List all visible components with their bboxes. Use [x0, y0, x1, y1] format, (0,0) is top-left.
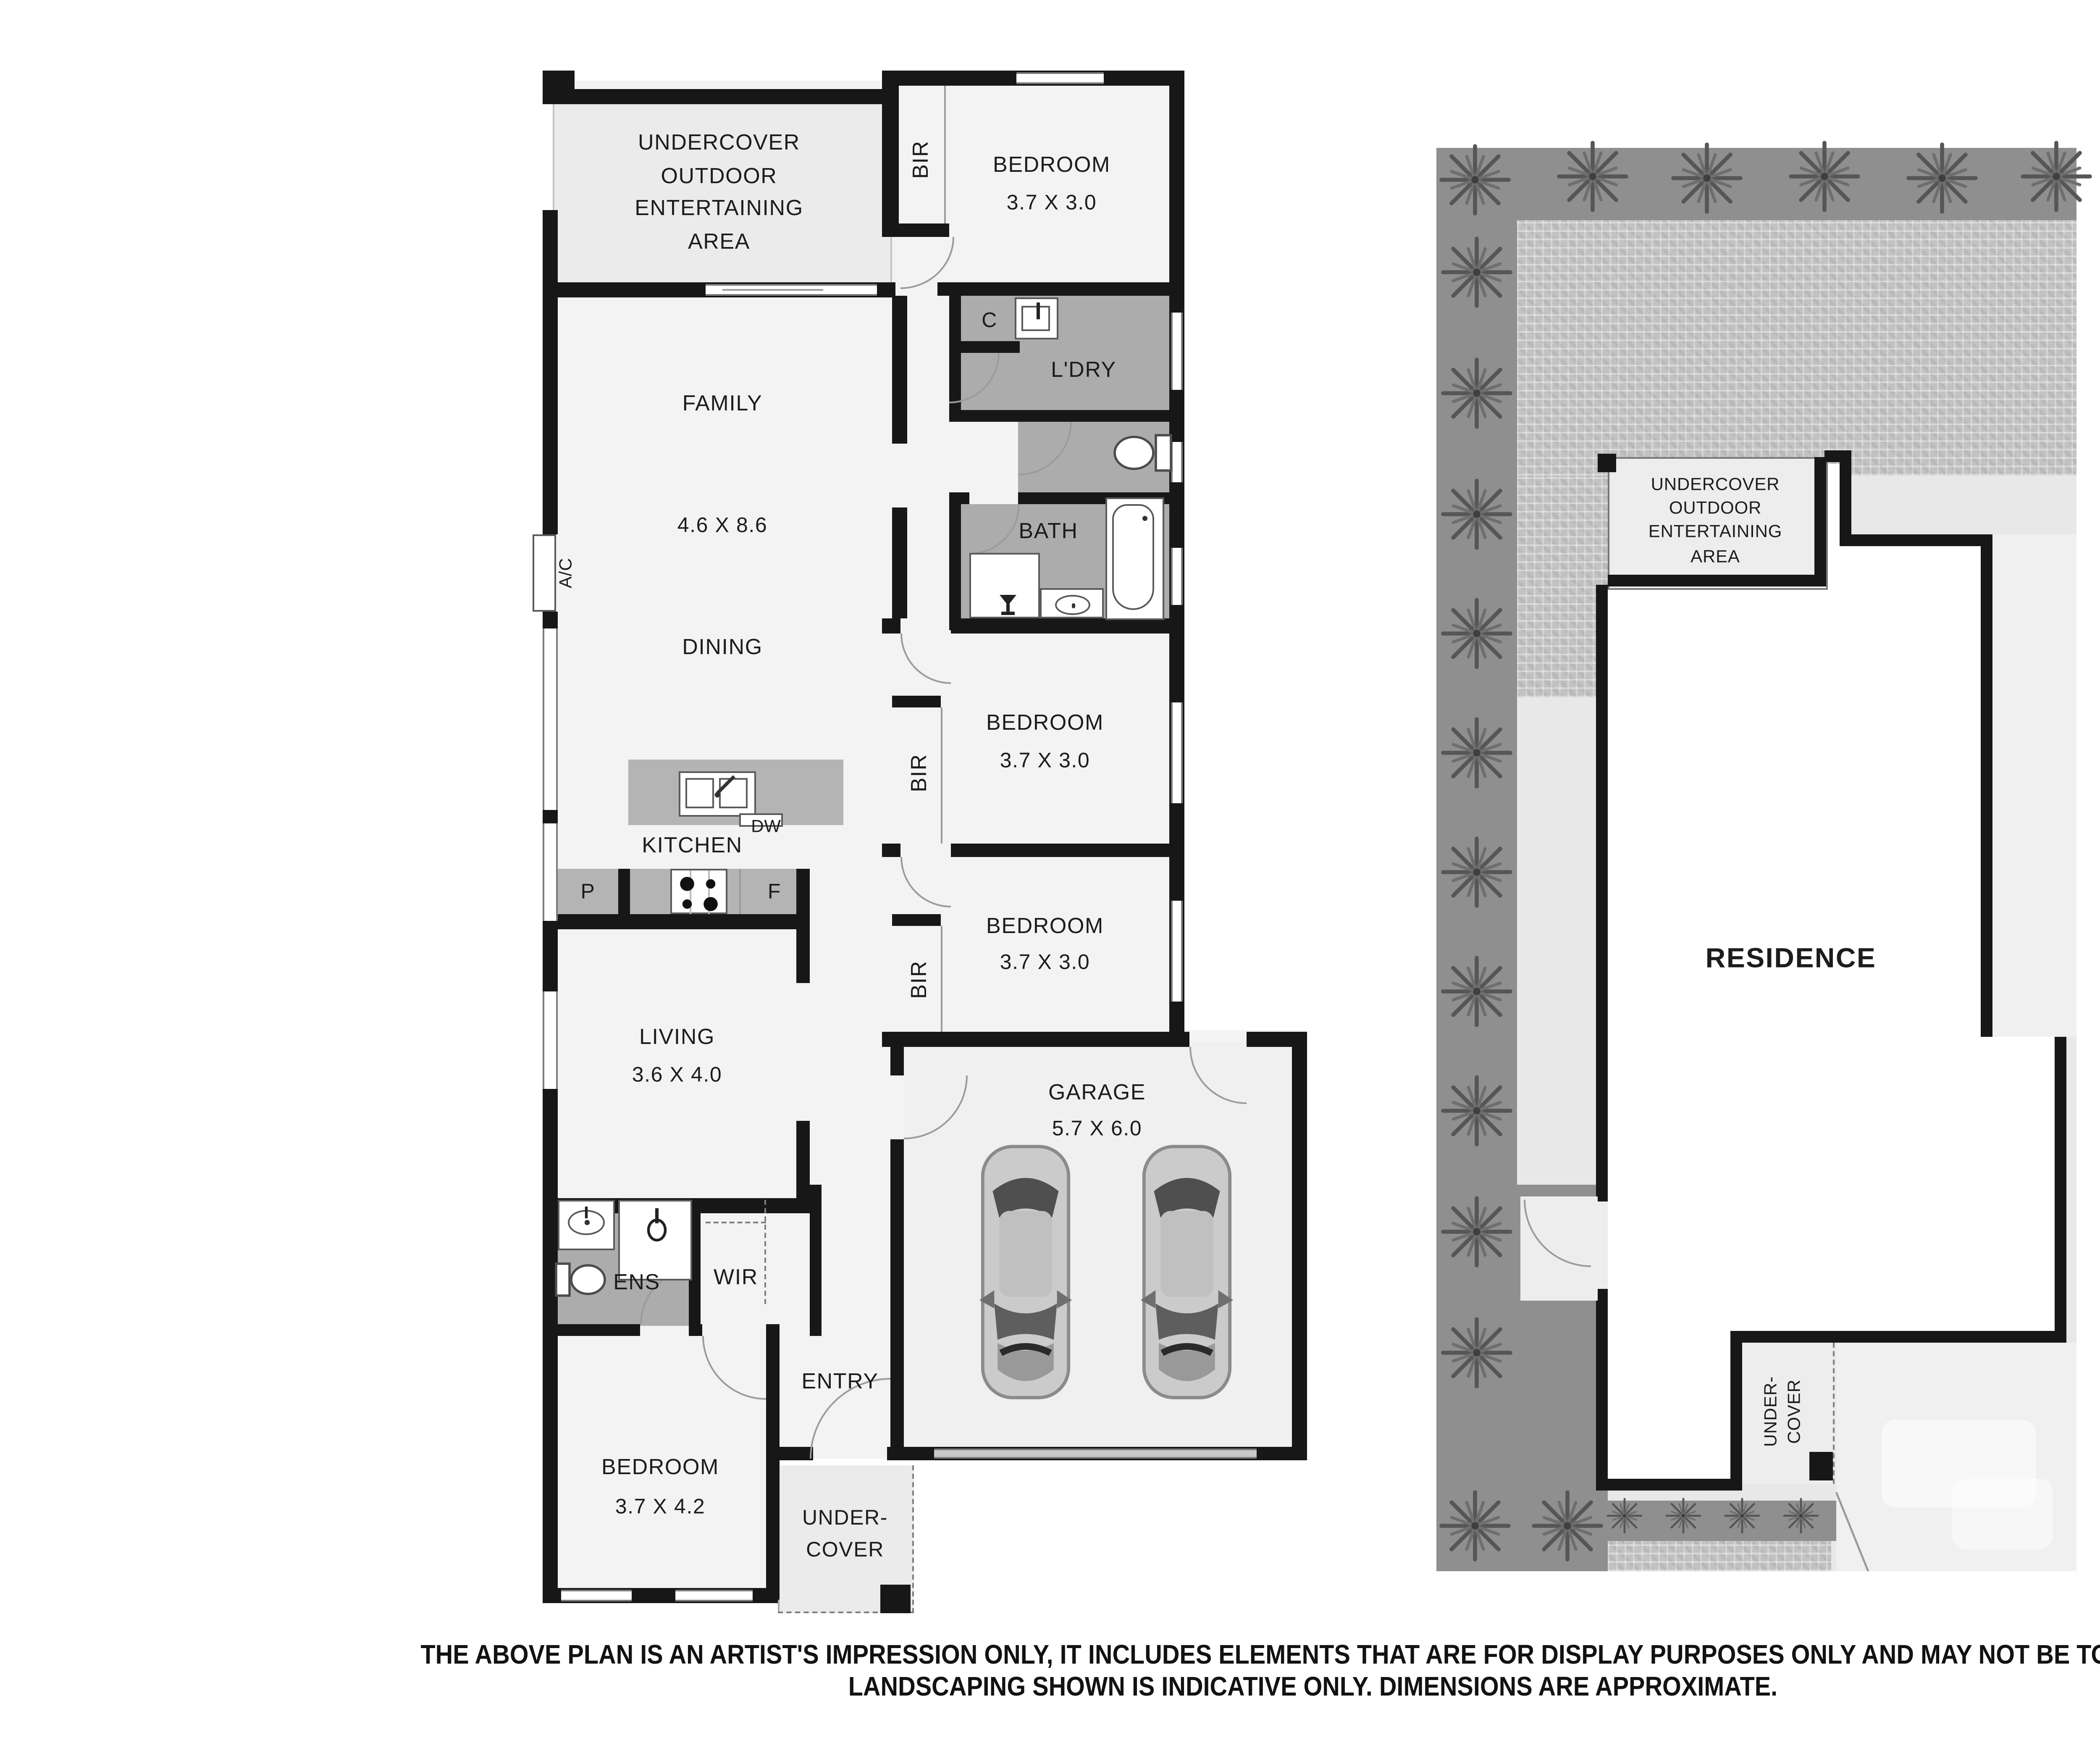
- floorplan-page: UNDERCOVER OUTDOOR ENTERTAINING AREA UND…: [0, 0, 2100, 1751]
- site-trees: [0, 0, 2100, 1751]
- disclaimer: THE ABOVE PLAN IS AN ARTIST'S IMPRESSION…: [131, 1640, 2100, 1704]
- floorplan-stage: UNDERCOVER OUTDOOR ENTERTAINING AREA UND…: [0, 0, 2100, 1751]
- disclaimer-line2: LANDSCAPING SHOWN IS INDICATIVE ONLY. DI…: [131, 1672, 2100, 1704]
- tree-icon: [1441, 146, 1509, 213]
- disclaimer-line1: THE ABOVE PLAN IS AN ARTIST'S IMPRESSION…: [131, 1640, 2100, 1672]
